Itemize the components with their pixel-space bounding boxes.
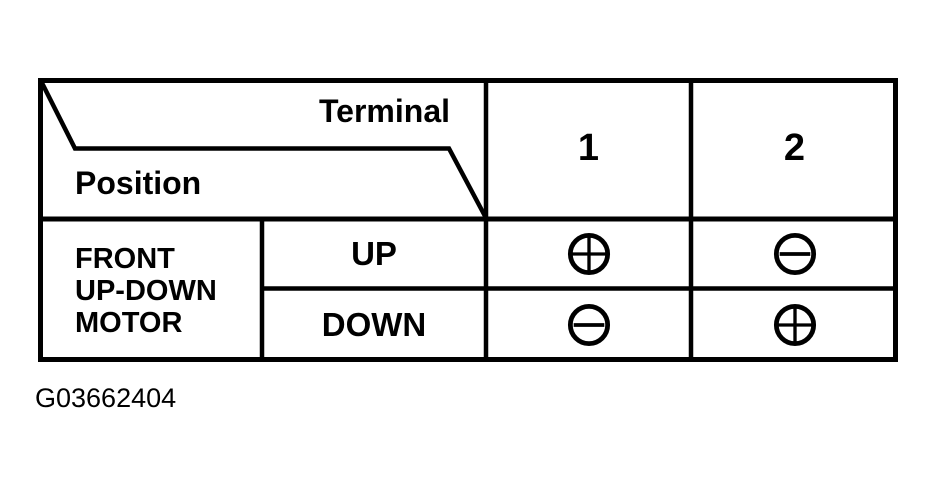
terminal-polarity-table: Terminal Position 1 2 FRONT UP-DOWN MOTO… [38, 78, 898, 362]
minus-polarity-icon [691, 219, 898, 288]
row-group-label-front-up-down-motor: FRONT UP-DOWN MOTOR [38, 219, 262, 362]
position-up-label: UP [262, 219, 486, 288]
minus-polarity-icon [486, 288, 691, 362]
terminal-1-column-header: 1 [486, 78, 691, 219]
scanned-figure-page: Terminal Position 1 2 FRONT UP-DOWN MOTO… [0, 0, 935, 483]
group-label-line-1: FRONT [75, 243, 175, 275]
group-label-line-3: MOTOR [75, 307, 182, 339]
plus-polarity-icon [691, 288, 898, 362]
plus-polarity-icon [486, 219, 691, 288]
position-down-label: DOWN [262, 288, 486, 362]
terminal-header-label: Terminal [38, 91, 450, 131]
position-header-label: Position [75, 163, 201, 203]
figure-id-caption: G03662404 [35, 382, 176, 414]
group-label-line-2: UP-DOWN [75, 275, 217, 307]
terminal-2-column-header: 2 [691, 78, 898, 219]
